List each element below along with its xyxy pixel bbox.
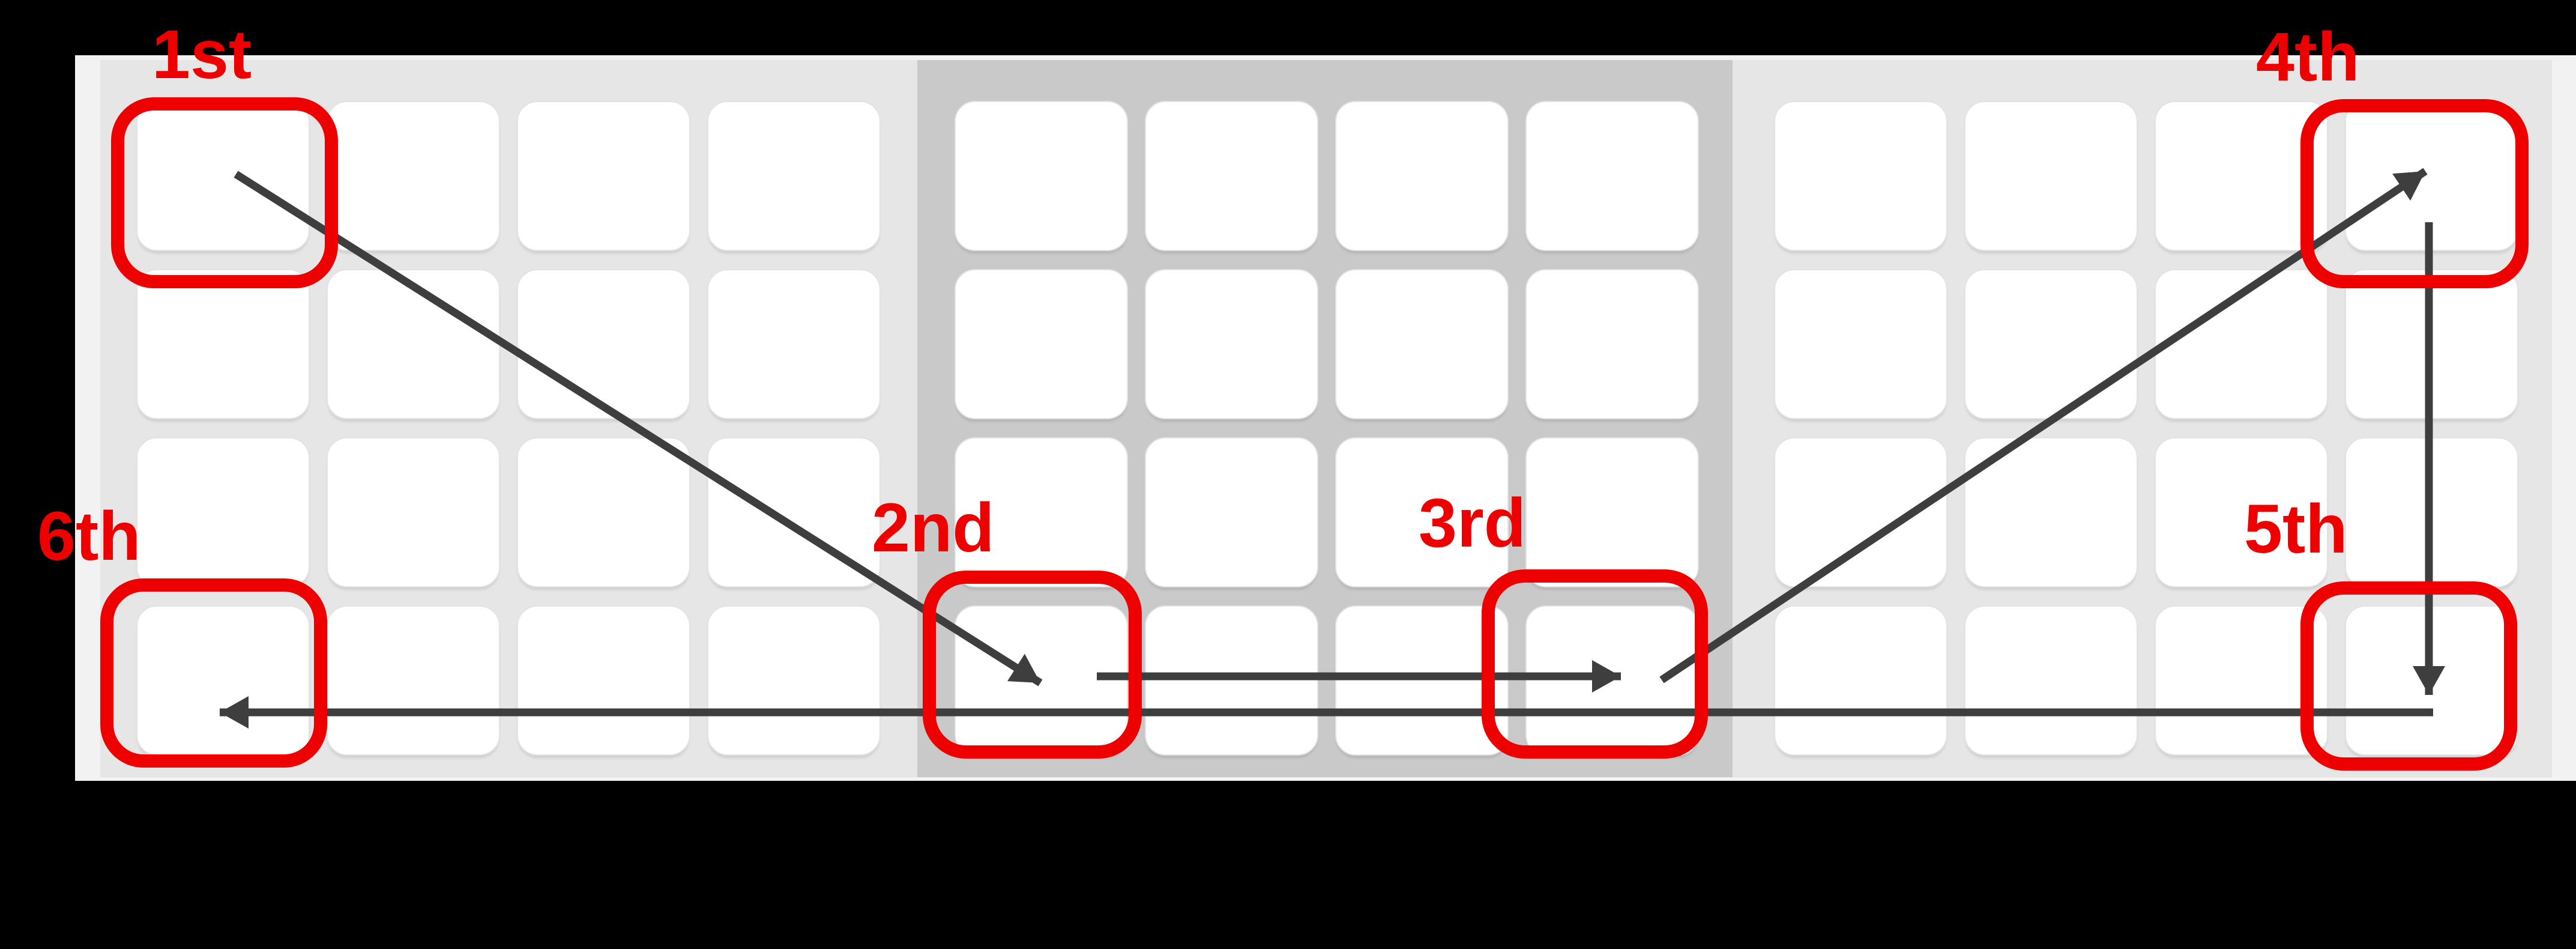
key-cell[interactable] xyxy=(1525,269,1699,419)
key-cell[interactable] xyxy=(1774,437,1947,587)
key-cell[interactable] xyxy=(517,437,690,587)
key-cell[interactable] xyxy=(1964,101,2138,251)
key-cell[interactable] xyxy=(1145,101,1318,251)
key-cell[interactable] xyxy=(1774,269,1947,419)
key-cell[interactable] xyxy=(1774,101,1947,251)
step-label-6th: 6th xyxy=(37,502,141,571)
key-cell[interactable] xyxy=(1145,437,1318,587)
key-cell[interactable] xyxy=(327,101,500,251)
step-highlight-4th xyxy=(2300,99,2529,288)
key-cell[interactable] xyxy=(707,605,881,756)
key-cell[interactable] xyxy=(2345,269,2518,419)
key-cell[interactable] xyxy=(707,101,881,251)
key-cell[interactable] xyxy=(955,101,1128,251)
key-cell[interactable] xyxy=(1145,605,1318,756)
key-cell[interactable] xyxy=(327,437,500,587)
key-cell[interactable] xyxy=(136,437,310,587)
key-cell[interactable] xyxy=(517,101,690,251)
key-cell[interactable] xyxy=(136,269,310,419)
step-label-3rd: 3rd xyxy=(1419,489,1526,558)
step-highlight-2nd xyxy=(923,571,1142,759)
key-cell[interactable] xyxy=(1964,269,2138,419)
key-cell[interactable] xyxy=(707,269,881,419)
key-cell[interactable] xyxy=(1335,269,1509,419)
key-cell[interactable] xyxy=(707,437,881,587)
step-label-2nd: 2nd xyxy=(872,494,994,563)
step-highlight-1st xyxy=(111,97,338,288)
key-cell[interactable] xyxy=(1964,605,2138,756)
key-cell[interactable] xyxy=(517,605,690,756)
key-cell[interactable] xyxy=(1145,269,1318,419)
step-label-1st: 1st xyxy=(152,20,252,89)
key-cell[interactable] xyxy=(2345,437,2518,587)
step-highlight-3rd xyxy=(1482,569,1708,759)
key-cell[interactable] xyxy=(327,605,500,756)
key-cell[interactable] xyxy=(1335,101,1509,251)
slide-background: 1st2nd3rd4th5th6th xyxy=(0,0,2576,949)
key-cell[interactable] xyxy=(2155,269,2328,419)
key-cell[interactable] xyxy=(955,269,1128,419)
key-cell[interactable] xyxy=(327,269,500,419)
key-cell[interactable] xyxy=(1525,101,1699,251)
step-label-4th: 4th xyxy=(2256,23,2360,92)
step-label-5th: 5th xyxy=(2244,495,2348,564)
step-highlight-5th xyxy=(2300,581,2517,771)
key-cell[interactable] xyxy=(1774,605,1947,756)
key-cell[interactable] xyxy=(1525,437,1699,587)
key-cell[interactable] xyxy=(1964,437,2138,587)
step-highlight-6th xyxy=(100,578,327,768)
key-cell[interactable] xyxy=(517,269,690,419)
